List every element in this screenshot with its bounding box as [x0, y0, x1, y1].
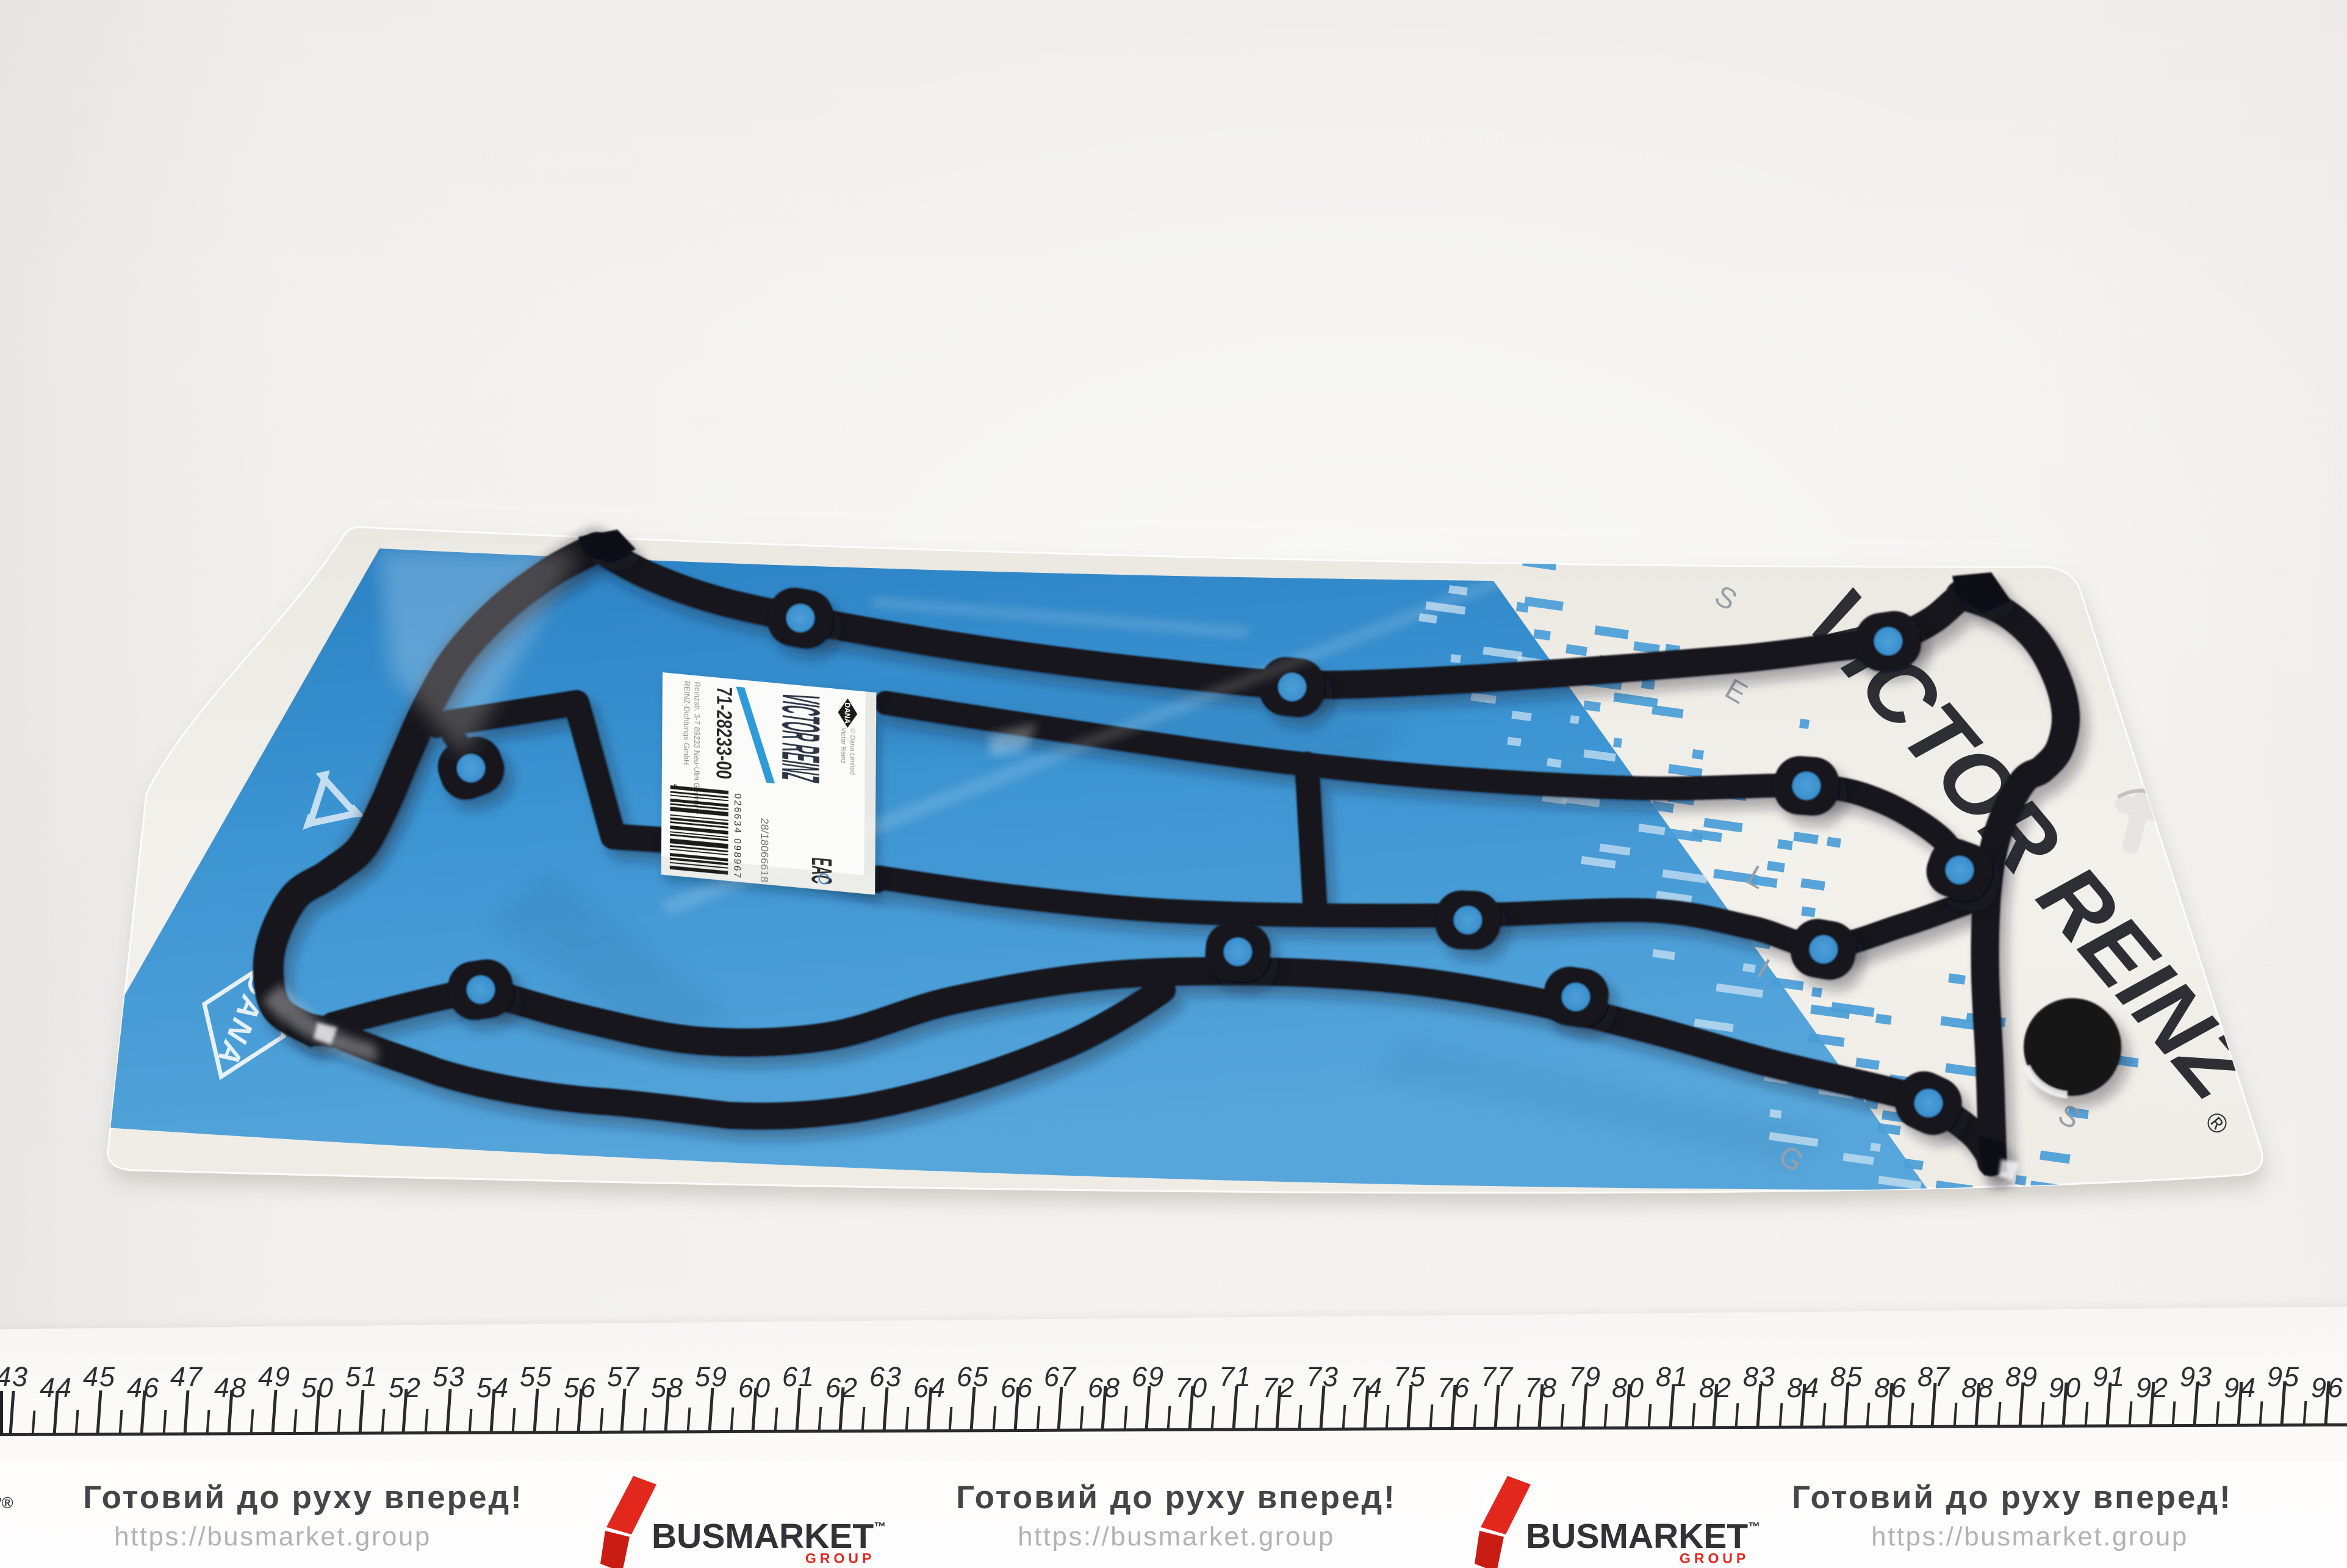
svg-text:T: T: [2328, 1115, 2347, 1152]
svg-text:R: R: [2293, 633, 2328, 671]
svg-text:O: O: [2300, 729, 2336, 769]
svg-text:D: D: [2307, 825, 2342, 864]
svg-text:DANA: DANA: [843, 702, 852, 724]
svg-text:REINZ-Dichtungs-GmbH: REINZ-Dichtungs-GmbH: [682, 680, 691, 765]
svg-text:S: S: [2335, 1211, 2347, 1249]
svg-text:U: U: [2314, 922, 2347, 960]
svg-text:P: P: [2286, 536, 2319, 574]
svg-text:026634 098967: 026634 098967: [731, 793, 742, 880]
svg-text:71-28233-00: 71-28233-00: [712, 686, 736, 780]
svg-text:© Dana Limited: © Dana Limited: [849, 728, 856, 775]
svg-text:C: C: [2321, 1018, 2347, 1057]
svg-text:4: 4: [670, 783, 681, 790]
svg-text:EAC: EAC: [805, 856, 838, 885]
svg-text:Victor Reinz: Victor Reinz: [839, 727, 847, 764]
svg-text:VICTOR REINZ: VICTOR REINZ: [771, 691, 832, 785]
